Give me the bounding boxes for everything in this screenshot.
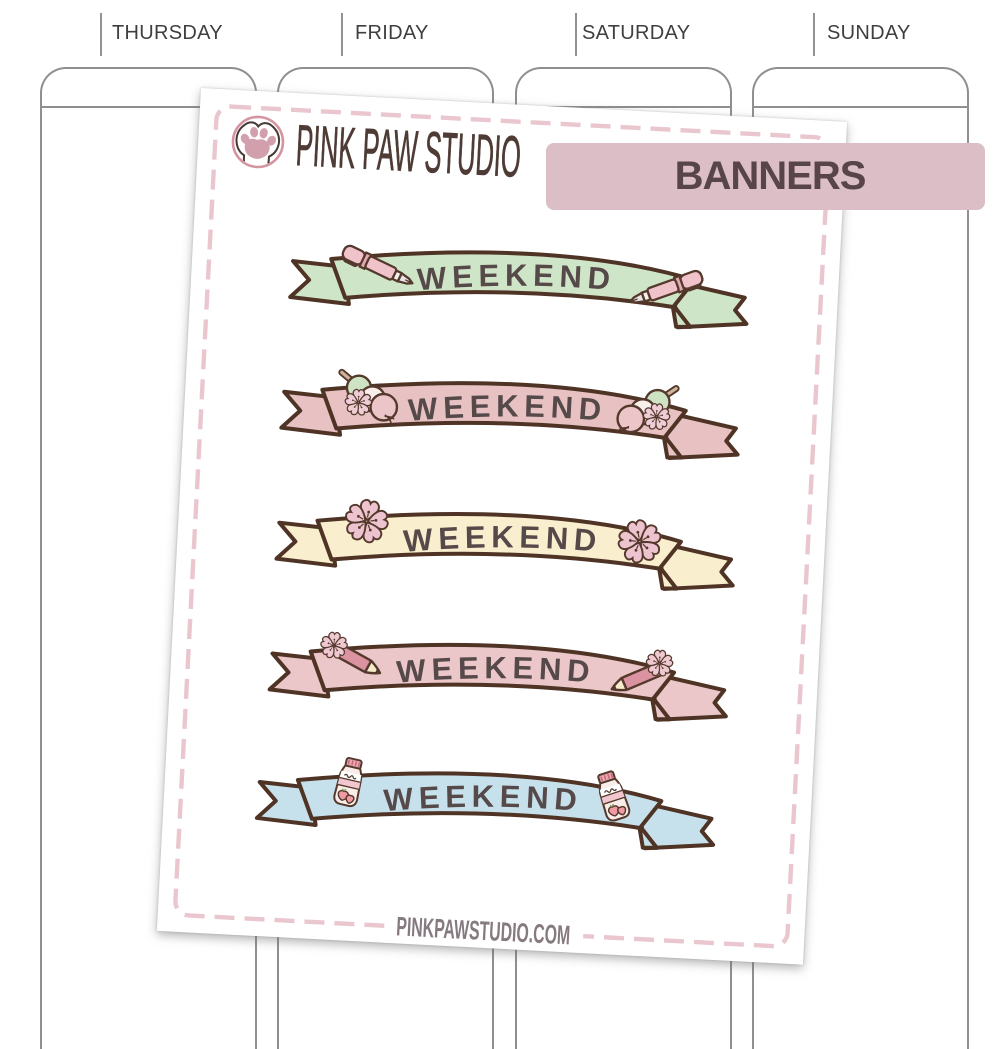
svg-text:WEEKEND: WEEKEND: [395, 650, 596, 689]
svg-text:WEEKEND: WEEKEND: [383, 779, 584, 818]
svg-text:WEEKEND: WEEKEND: [402, 519, 603, 558]
svg-text:WEEKEND: WEEKEND: [416, 258, 617, 297]
svg-text:PINK PAW STUDIO: PINK PAW STUDIO: [294, 113, 522, 190]
svg-text:WEEKEND: WEEKEND: [407, 388, 608, 427]
